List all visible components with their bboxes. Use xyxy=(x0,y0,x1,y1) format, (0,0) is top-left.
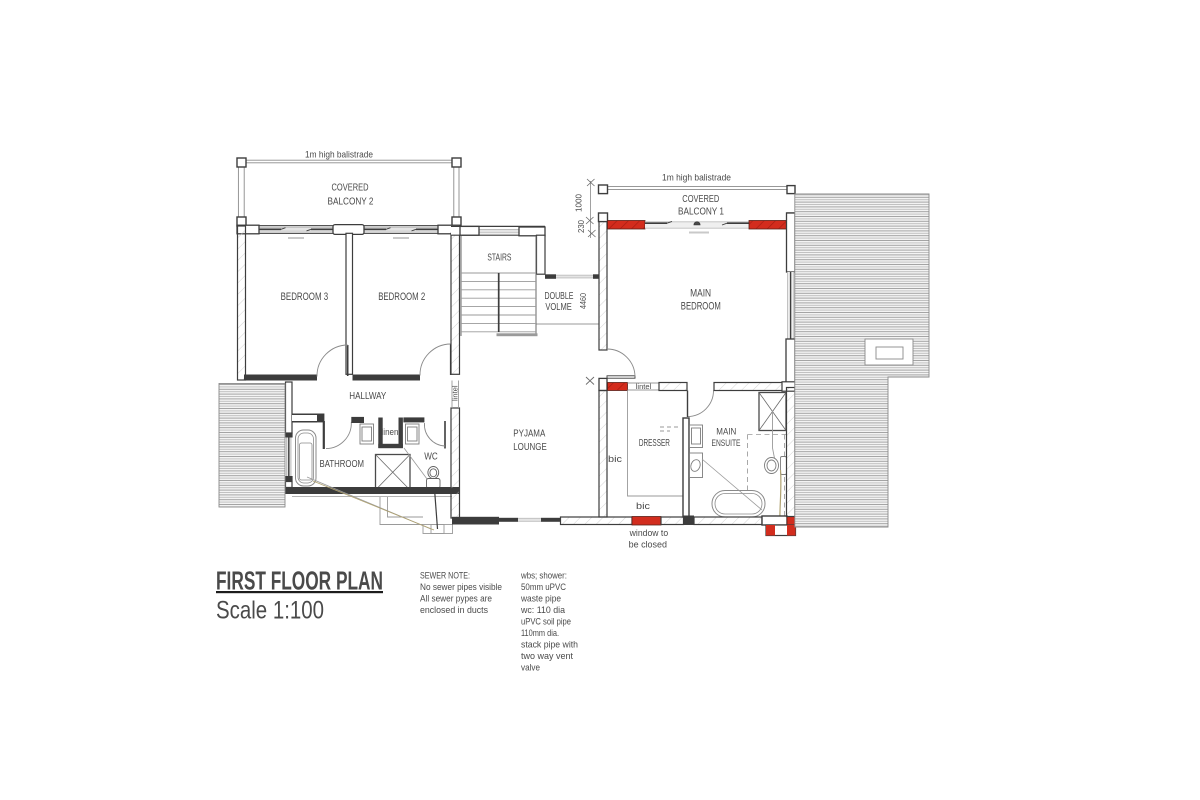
svg-text:bic: bic xyxy=(608,454,622,465)
svg-text:LOUNGE: LOUNGE xyxy=(513,441,547,453)
svg-text:1000: 1000 xyxy=(575,193,584,212)
svg-text:DRESSER: DRESSER xyxy=(639,437,670,449)
svg-text:BALCONY 1: BALCONY 1 xyxy=(678,206,724,218)
svg-text:valve: valve xyxy=(521,663,540,674)
svg-text:50mm uPVC: 50mm uPVC xyxy=(521,582,566,593)
svg-text:BEDROOM 2: BEDROOM 2 xyxy=(378,291,425,303)
svg-text:1m high balistrade: 1m high balistrade xyxy=(662,173,731,184)
svg-text:wbs; shower:: wbs; shower: xyxy=(520,571,567,582)
svg-text:MAIN: MAIN xyxy=(716,427,736,438)
svg-text:COVERED: COVERED xyxy=(682,193,719,205)
svg-text:Scale 1:100: Scale 1:100 xyxy=(216,597,324,625)
svg-text:BEDROOM 3: BEDROOM 3 xyxy=(281,291,329,303)
svg-text:ENSUITE: ENSUITE xyxy=(712,438,741,449)
svg-text:WC: WC xyxy=(424,451,438,463)
svg-text:stack pipe with: stack pipe with xyxy=(521,640,578,651)
svg-text:uPVC soil pipe: uPVC soil pipe xyxy=(521,617,571,628)
svg-text:BALCONY 2: BALCONY 2 xyxy=(328,196,374,208)
svg-text:be closed: be closed xyxy=(629,540,667,551)
svg-text:230: 230 xyxy=(577,219,586,233)
svg-text:BATHROOM: BATHROOM xyxy=(320,458,365,470)
svg-text:waste pipe: waste pipe xyxy=(520,594,561,605)
svg-text:bic: bic xyxy=(636,501,650,512)
svg-text:COVERED: COVERED xyxy=(332,182,369,194)
svg-text:4460: 4460 xyxy=(579,293,588,309)
svg-text:PYJAMA: PYJAMA xyxy=(513,428,545,440)
svg-text:window to: window to xyxy=(629,528,668,539)
svg-text:1m high balistrade: 1m high balistrade xyxy=(305,150,373,161)
svg-text:HALLWAY: HALLWAY xyxy=(349,390,386,402)
svg-text:lintel: lintel xyxy=(451,385,460,401)
svg-text:enclosed in ducts: enclosed in ducts xyxy=(420,605,488,616)
svg-text:SEWER NOTE:: SEWER NOTE: xyxy=(420,571,470,582)
svg-text:BEDROOM: BEDROOM xyxy=(681,301,721,313)
svg-text:110mm dia.: 110mm dia. xyxy=(521,628,559,639)
svg-text:VOLME: VOLME xyxy=(545,302,572,313)
svg-text:lintel: lintel xyxy=(636,382,652,391)
svg-text:wc: 110 dia: wc: 110 dia xyxy=(520,605,566,616)
svg-text:linen: linen xyxy=(382,427,399,438)
svg-text:All sewer pypes are: All sewer pypes are xyxy=(420,594,492,605)
svg-text:No sewer pipes visible: No sewer pipes visible xyxy=(420,582,502,593)
svg-text:two way vent: two way vent xyxy=(521,651,573,662)
svg-text:DOUBLE: DOUBLE xyxy=(545,291,574,302)
svg-text:STAIRS: STAIRS xyxy=(487,253,511,264)
svg-text:MAIN: MAIN xyxy=(690,287,711,299)
